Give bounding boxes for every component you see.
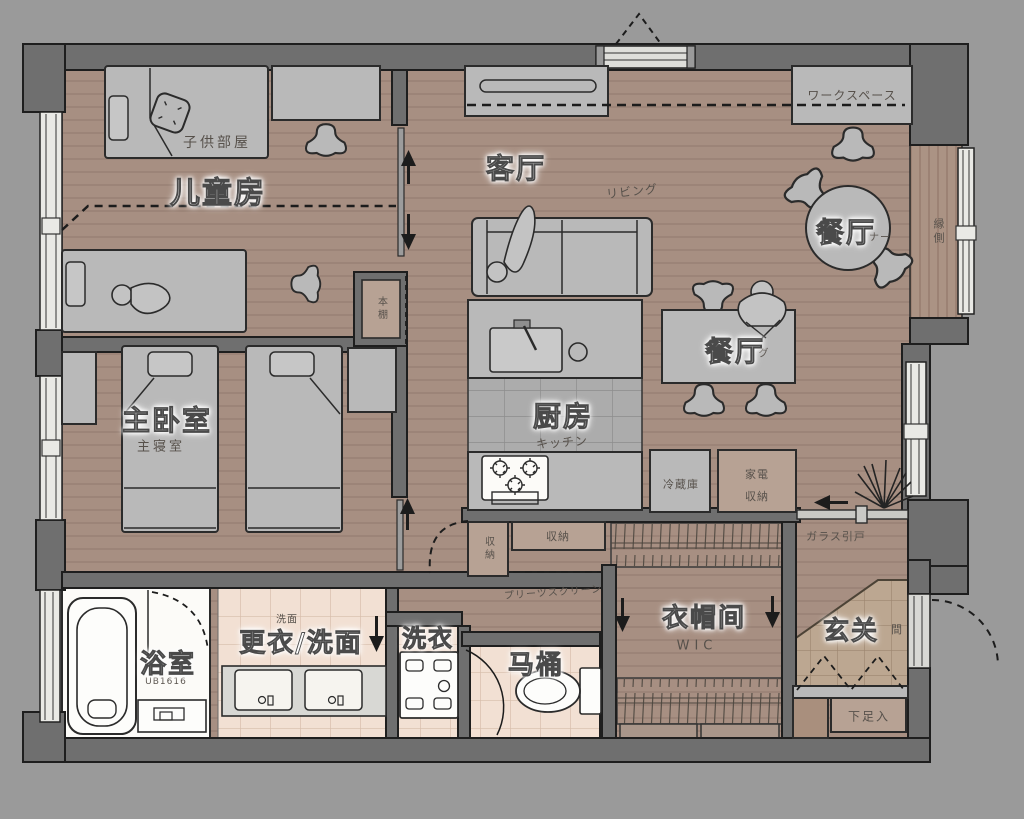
master-bed-left bbox=[122, 346, 218, 532]
bedroom-wardrobe bbox=[348, 348, 396, 412]
bathtub bbox=[68, 598, 136, 734]
entry-shelf bbox=[793, 686, 908, 698]
sofa bbox=[472, 218, 652, 296]
engawa-floor bbox=[910, 143, 962, 318]
storage-wide-box bbox=[512, 522, 605, 550]
wic-hanging-rack-bottom bbox=[617, 678, 782, 724]
wall-bottom bbox=[62, 738, 930, 762]
wall-wet-divider bbox=[62, 572, 612, 588]
entry-door-opening bbox=[908, 594, 930, 668]
wall-below-entry-door bbox=[908, 668, 930, 738]
kitchen-stove-counter bbox=[468, 452, 642, 510]
kids-desk bbox=[272, 66, 380, 120]
refrigerator-box bbox=[650, 450, 710, 512]
wall-wic-west bbox=[602, 565, 616, 738]
window-right-dining bbox=[904, 362, 928, 496]
window-left-upper bbox=[40, 112, 62, 330]
window-engawa bbox=[956, 148, 976, 314]
round-table bbox=[806, 186, 890, 270]
storage-tall-box bbox=[468, 522, 508, 576]
entry-side-strip bbox=[793, 698, 828, 738]
washing-machine bbox=[400, 652, 458, 718]
wall-right-block bbox=[908, 500, 968, 566]
wall-toilet-top bbox=[462, 632, 602, 646]
wall-top-left-pier bbox=[23, 44, 65, 112]
master-bed-right bbox=[246, 346, 342, 532]
wall-left-pier bbox=[36, 330, 62, 376]
workspace-desk bbox=[792, 66, 912, 124]
wic-low-cabinet-left bbox=[620, 724, 697, 738]
bedroom-nightstand bbox=[62, 352, 96, 424]
wall-dressing-laundry bbox=[386, 588, 398, 738]
kitchen-sink-counter bbox=[468, 300, 642, 378]
wall-kids-east-top bbox=[392, 70, 407, 125]
appliance-storage-box bbox=[718, 450, 796, 512]
kitchen-tile-floor bbox=[468, 378, 642, 454]
window-bathroom bbox=[40, 590, 60, 722]
window-top-living bbox=[596, 46, 695, 68]
tv-board bbox=[465, 66, 608, 116]
window-left-lower bbox=[40, 376, 62, 520]
wall-top-right-block bbox=[910, 44, 968, 145]
bookshelf bbox=[362, 280, 400, 338]
toilet-fixture bbox=[516, 668, 601, 714]
floorplan-page: 子供部屋 リビング ワークスペース 縁側 主寝室 キッチン 冷蔵庫 家電 収納 … bbox=[0, 0, 1024, 819]
wic-low-cabinet-right bbox=[701, 724, 779, 738]
wall-above-entry-door bbox=[908, 560, 930, 594]
wic-hanging-rack-top bbox=[611, 523, 782, 567]
bath-counter bbox=[138, 700, 206, 732]
wall-left-lower bbox=[36, 520, 65, 590]
shoe-cabinet-box bbox=[831, 698, 906, 732]
wall-right-step bbox=[930, 566, 968, 594]
vanity-counter bbox=[222, 666, 386, 716]
floorplan-canvas bbox=[0, 0, 1024, 819]
wall-laundry-top bbox=[386, 612, 462, 626]
wall-engawa-bottom bbox=[910, 318, 968, 344]
